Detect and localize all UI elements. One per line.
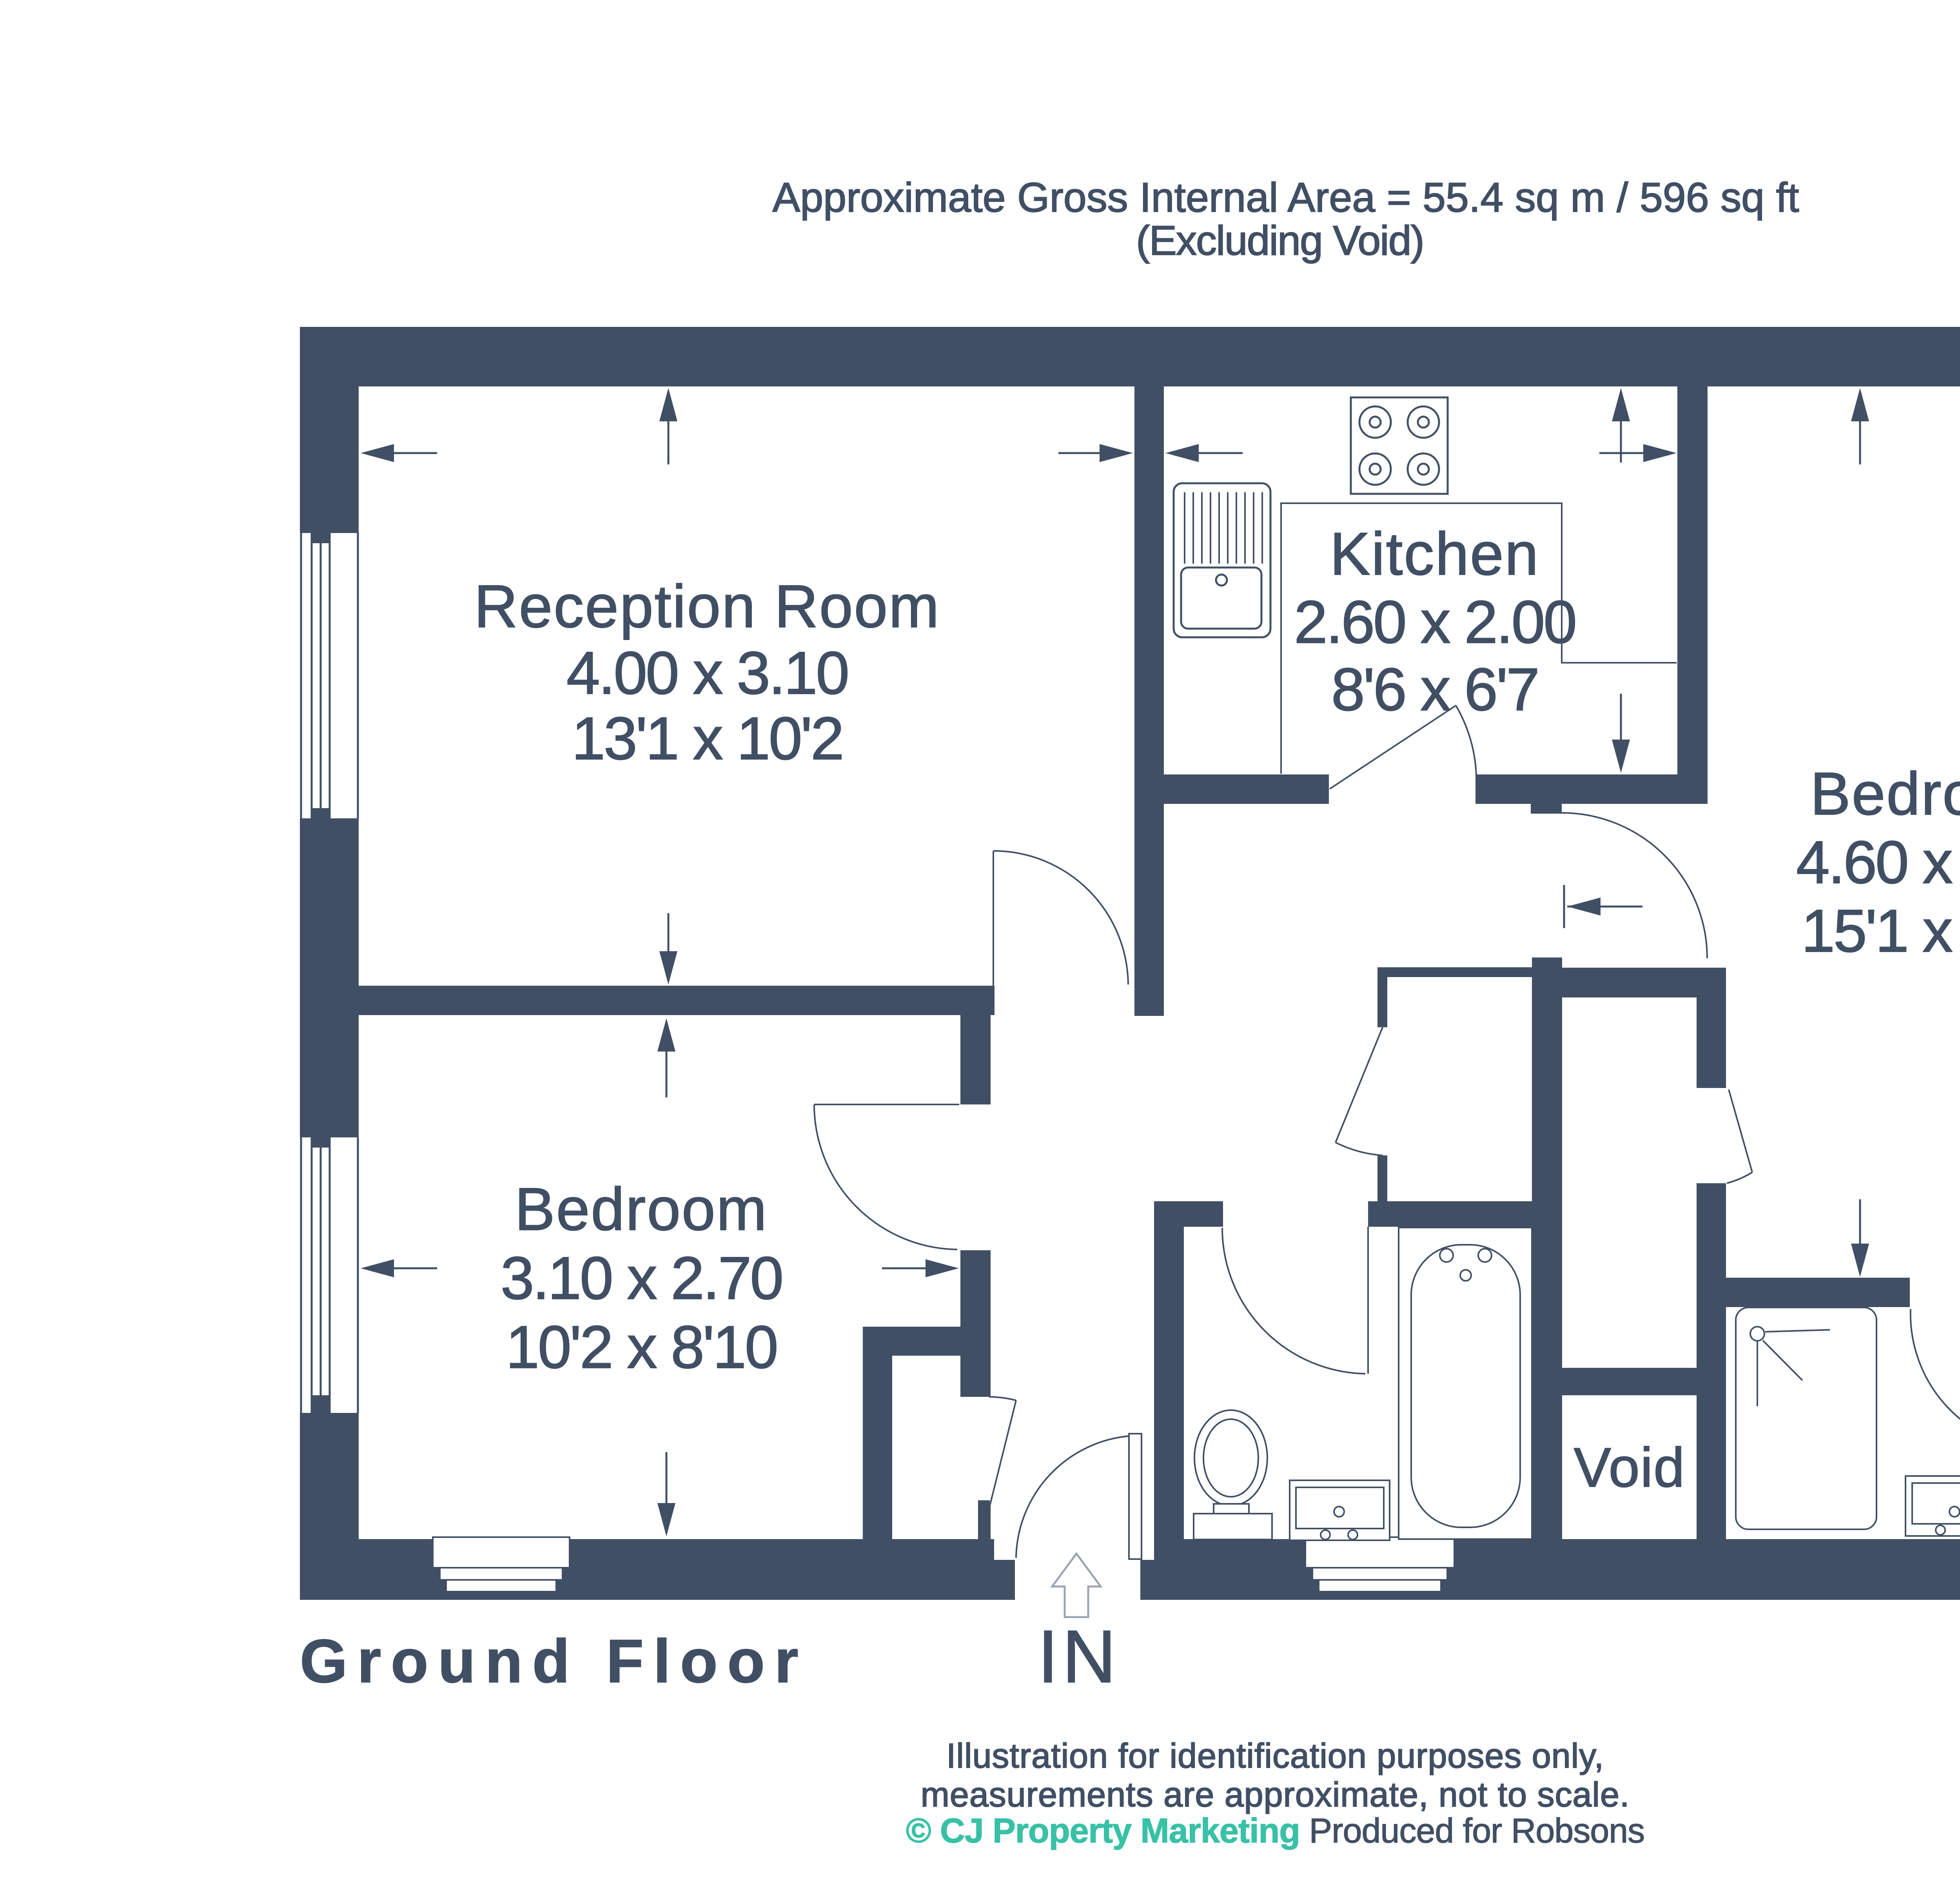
svg-text:© CJ Property Marketing Produ: © CJ Property Marketing Produced for Rob… — [906, 1811, 1644, 1850]
svg-text:Approximate Gross Internal Are: Approximate Gross Internal Area = 55.4 s… — [773, 174, 1799, 221]
svg-text:8'6 x 6'7: 8'6 x 6'7 — [1331, 656, 1538, 723]
svg-text:Ground Floor: Ground Floor — [300, 1627, 808, 1695]
svg-text:10'2 x 8'10: 10'2 x 8'10 — [506, 1313, 777, 1381]
svg-text:measurements are approximate,: measurements are approximate, not to sca… — [921, 1775, 1630, 1814]
svg-text:IN: IN — [1038, 1615, 1120, 1698]
svg-text:3.10 x 2.70: 3.10 x 2.70 — [501, 1244, 782, 1312]
svg-text:(Excluding Void): (Excluding Void) — [1136, 218, 1424, 264]
svg-text:13'1 x 10'2: 13'1 x 10'2 — [572, 705, 842, 772]
svg-text:Illustration for identificatio: Illustration for identification purposes… — [946, 1736, 1604, 1775]
svg-text:15'1 x 10'6: 15'1 x 10'6 — [1801, 897, 1960, 965]
svg-text:4.60 x 3.20: 4.60 x 3.20 — [1796, 829, 1960, 896]
svg-text:Kitchen: Kitchen — [1330, 520, 1540, 588]
svg-text:4.00 x 3.10: 4.00 x 3.10 — [566, 639, 848, 707]
svg-text:Bedroom: Bedroom — [1810, 760, 1960, 827]
svg-text:Reception Room: Reception Room — [474, 573, 940, 640]
svg-text:Void: Void — [1574, 1436, 1685, 1499]
svg-text:2.60 x 2.00: 2.60 x 2.00 — [1294, 588, 1575, 656]
svg-text:Bedroom: Bedroom — [515, 1175, 768, 1243]
